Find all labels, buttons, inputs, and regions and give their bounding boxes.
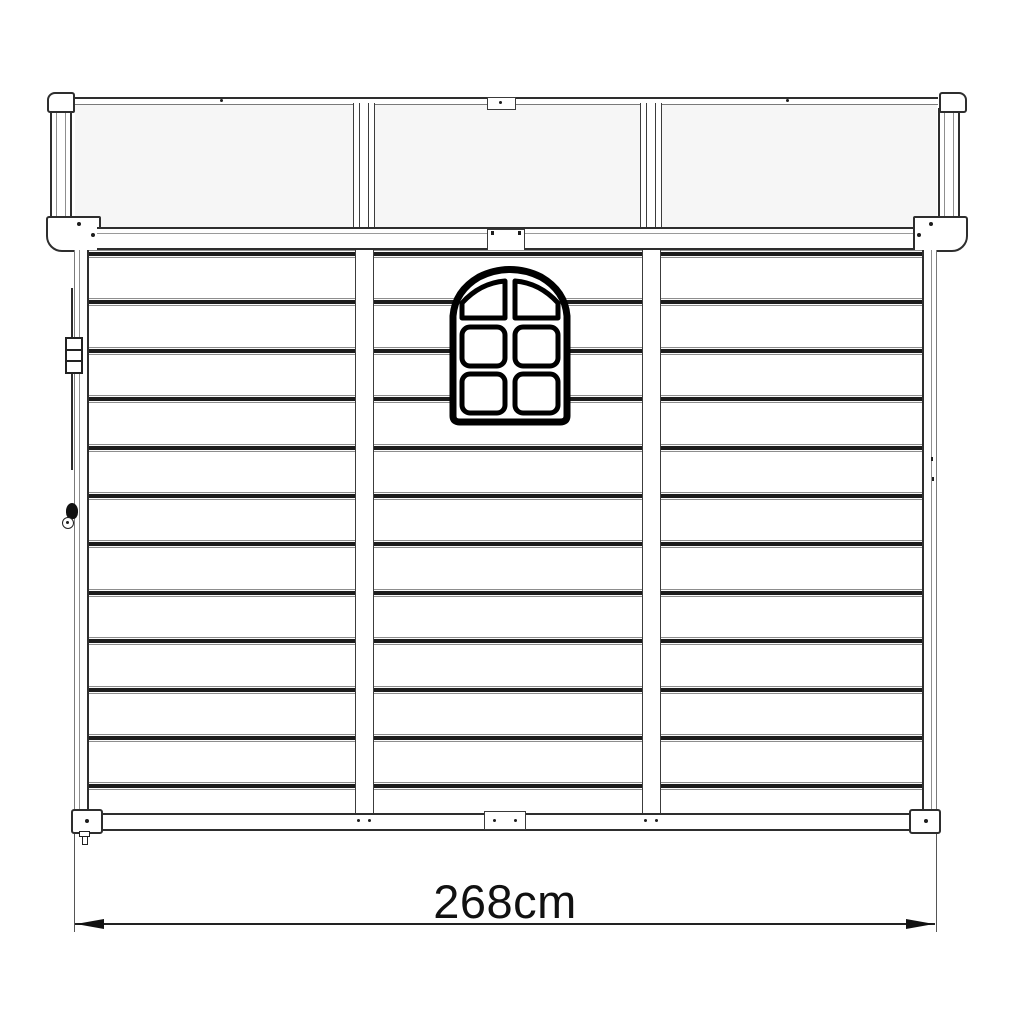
hinge-divider <box>67 360 81 362</box>
rail-screw <box>368 819 371 822</box>
rail-screw <box>357 819 360 822</box>
foot-bolt-shaft <box>82 836 88 845</box>
window-pane-mid-left <box>462 327 505 366</box>
foot-bracket-right <box>909 809 941 834</box>
window-pane-bot-right <box>515 374 558 413</box>
foot-screw <box>85 819 89 823</box>
edge-screw <box>932 477 934 481</box>
dimension-extension-line-left <box>74 833 75 932</box>
plank-band <box>89 492 922 500</box>
wall-edge-left <box>74 250 89 815</box>
door-latch-screw <box>62 517 74 529</box>
door-hinge <box>65 337 83 374</box>
plank-band <box>89 589 922 597</box>
window-pane-bot-left <box>462 374 505 413</box>
plank-bands <box>0 0 1024 1024</box>
plank-band <box>89 540 922 548</box>
plate-screw <box>493 819 496 822</box>
dimension-extension-line-right <box>936 831 937 932</box>
dimension-arrow-right <box>906 919 934 929</box>
screw-center <box>66 521 69 524</box>
shed-elevation-diagram: 268cm <box>0 0 1024 1024</box>
foot-screw <box>924 819 928 823</box>
plank-band <box>89 250 922 258</box>
plank-band <box>89 444 922 452</box>
dimension-arrow-left <box>76 919 104 929</box>
rail-screw <box>655 819 658 822</box>
plank-band <box>89 637 922 645</box>
plank-band <box>89 782 922 790</box>
plate-screw <box>514 819 517 822</box>
wall-mullion-right <box>642 250 661 815</box>
plank-band <box>89 734 922 742</box>
rail-screw <box>644 819 647 822</box>
door-edge-line <box>71 288 73 470</box>
edge-screw <box>931 457 933 461</box>
rail-center-plate <box>484 811 526 830</box>
window-pane-mid-right <box>515 327 558 366</box>
wall-edge-right <box>922 250 937 815</box>
hinge-divider <box>67 349 81 351</box>
plank-band <box>89 686 922 694</box>
wall-mullion-left <box>355 250 374 815</box>
arched-window <box>448 264 572 427</box>
dimension-label: 268cm <box>355 878 655 925</box>
